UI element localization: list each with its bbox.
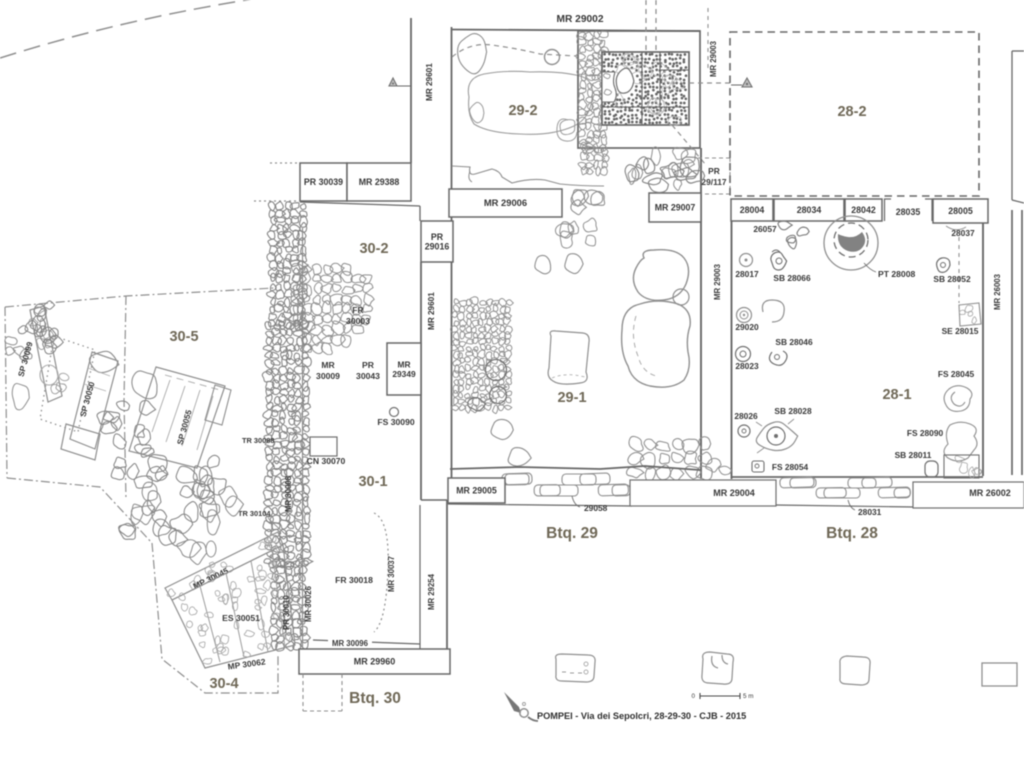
svg-text:28035: 28035: [896, 207, 921, 217]
svg-text:29058: 29058: [584, 503, 608, 513]
svg-text:Btq. 28: Btq. 28: [826, 525, 878, 542]
svg-text:30003: 30003: [346, 316, 370, 326]
svg-text:MR: MR: [321, 360, 335, 370]
svg-text:MR 29388: MR 29388: [359, 177, 400, 187]
svg-text:MR 29006: MR 29006: [484, 197, 527, 208]
svg-text:MR: MR: [397, 360, 410, 370]
svg-text:28031: 28031: [858, 507, 882, 517]
svg-text:TR 30088: TR 30088: [242, 436, 274, 445]
svg-text:FR: FR: [352, 305, 364, 315]
svg-text:CN 30070: CN 30070: [307, 456, 346, 466]
svg-text:MR 29601: MR 29601: [427, 292, 436, 330]
svg-text:FS 28054: FS 28054: [772, 462, 809, 472]
svg-text:SB 28052: SB 28052: [933, 274, 971, 284]
svg-text:FR 30018: FR 30018: [335, 575, 373, 585]
svg-text:SB 28028: SB 28028: [774, 406, 812, 416]
svg-text:PR 30039: PR 30039: [304, 177, 343, 187]
svg-text:MP 30062: MP 30062: [227, 656, 266, 671]
svg-text:POMPEI - Via dei Sepolcri, 28-: POMPEI - Via dei Sepolcri, 28-29-30 - CJ…: [537, 711, 746, 721]
svg-text:PR: PR: [362, 360, 375, 370]
svg-text:30-5: 30-5: [169, 329, 198, 345]
svg-text:MR 29002: MR 29002: [556, 14, 603, 25]
svg-text:TR 30104: TR 30104: [238, 509, 271, 518]
svg-text:FS 28045: FS 28045: [938, 369, 975, 379]
svg-text:26057: 26057: [753, 224, 777, 234]
svg-text:28-1: 28-1: [882, 387, 911, 403]
svg-text:29-1: 29-1: [557, 390, 586, 406]
svg-text:30-1: 30-1: [358, 474, 387, 490]
svg-text:30-4: 30-4: [209, 676, 238, 692]
svg-text:SP 30055: SP 30055: [176, 408, 194, 445]
svg-text:28005: 28005: [948, 206, 973, 216]
svg-text:MR 29960: MR 29960: [354, 657, 396, 667]
svg-text:SP 30050: SP 30050: [79, 380, 97, 417]
svg-text:SE 28015: SE 28015: [942, 326, 979, 336]
svg-text:FS 28090: FS 28090: [907, 428, 944, 438]
svg-text:PR: PR: [708, 166, 720, 176]
svg-text:28026: 28026: [734, 411, 758, 421]
svg-text:MR 30026: MR 30026: [304, 585, 313, 622]
svg-text:0: 0: [691, 693, 695, 700]
svg-text:ES 30051: ES 30051: [222, 613, 260, 623]
svg-text:28042: 28042: [851, 205, 876, 215]
svg-text:29349: 29349: [392, 369, 416, 379]
svg-text:MR 30008: MR 30008: [284, 475, 293, 512]
svg-text:28-2: 28-2: [837, 104, 866, 120]
svg-text:29020: 29020: [735, 322, 759, 332]
svg-text:28034: 28034: [797, 205, 822, 215]
svg-text:FS 30090: FS 30090: [377, 417, 414, 427]
svg-text:Btq. 29: Btq. 29: [546, 525, 598, 542]
svg-text:PT 28008: PT 28008: [878, 269, 915, 279]
svg-text:30009: 30009: [316, 371, 340, 381]
svg-text:MR 29003: MR 29003: [709, 40, 718, 77]
svg-text:28023: 28023: [735, 361, 759, 371]
svg-text:5 m: 5 m: [743, 693, 754, 700]
svg-text:30-2: 30-2: [359, 241, 388, 257]
svg-text:MR 29254: MR 29254: [427, 573, 436, 610]
svg-text:MR 26002: MR 26002: [969, 488, 1011, 498]
svg-text:MR 29005: MR 29005: [456, 486, 497, 496]
svg-text:Btq. 30: Btq. 30: [349, 690, 401, 707]
svg-text:28004: 28004: [740, 205, 765, 215]
svg-text:MR 30037: MR 30037: [387, 556, 396, 592]
svg-text:SB 28046: SB 28046: [775, 337, 813, 347]
svg-text:MR 26003: MR 26003: [993, 273, 1002, 310]
svg-text:28017: 28017: [735, 269, 759, 279]
svg-text:SB 28066: SB 28066: [773, 273, 811, 283]
svg-text:SB 28011: SB 28011: [895, 450, 932, 460]
svg-text:29016: 29016: [425, 242, 450, 252]
svg-text:MR 30096: MR 30096: [332, 639, 369, 648]
svg-text:MR 29007: MR 29007: [655, 203, 696, 213]
svg-text:PR: PR: [431, 232, 444, 242]
svg-text:29/117: 29/117: [701, 177, 726, 187]
svg-text:MR 29003: MR 29003: [713, 263, 722, 300]
svg-text:MR 29601: MR 29601: [425, 63, 434, 101]
svg-text:MR 29004: MR 29004: [713, 488, 755, 498]
svg-text:29-2: 29-2: [508, 103, 537, 119]
svg-text:30043: 30043: [356, 371, 380, 381]
